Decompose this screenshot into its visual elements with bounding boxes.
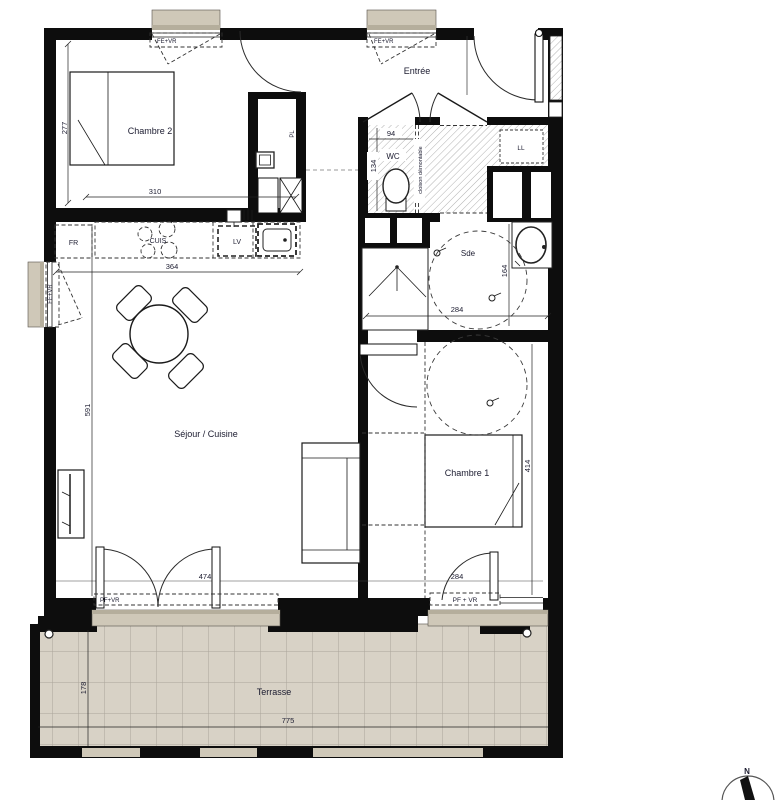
label-dishwasher: LV	[233, 239, 241, 246]
room-label-sejour: Séjour / Cuisine	[174, 429, 238, 439]
terrace-wall-segment	[268, 616, 418, 632]
wall-wc-top	[415, 117, 440, 125]
wall-sde-bottom	[358, 330, 363, 342]
room-label-wc: WC	[386, 152, 400, 161]
room-label-chambre2: Chambre 2	[128, 126, 173, 136]
entry-door-leaf	[535, 34, 543, 102]
dining-table	[111, 284, 210, 391]
closet	[256, 152, 302, 213]
shower	[362, 248, 428, 330]
dim-sde-w: 284	[451, 305, 464, 314]
label-placard: PL	[290, 130, 296, 138]
terrace-railing-panel	[313, 748, 483, 757]
door-sill-edge	[428, 610, 548, 614]
entry-door-hinge	[536, 30, 543, 37]
turning-circle-chambre1	[427, 335, 527, 435]
label-cooktop: CUIS	[150, 238, 167, 245]
wall-niche	[365, 218, 390, 243]
room-label-terrasse: Terrasse	[257, 687, 292, 697]
dim-chambre1-opening: 284	[451, 572, 464, 581]
wall-top	[436, 28, 474, 40]
floor-plan: Chambre 2 Entrée WC Sde Séjour / Cuisine…	[0, 0, 780, 800]
wall-wc-left	[358, 117, 368, 222]
closet-safe-inner	[260, 155, 271, 165]
wall-left	[44, 327, 56, 598]
toilet	[383, 169, 409, 211]
wall-bottom	[44, 598, 96, 616]
dim-wc-w: 94	[387, 129, 395, 138]
chambre1-door-leaf	[360, 344, 417, 355]
dim-chambre1-h: 414	[523, 460, 532, 473]
wall-bottom	[278, 598, 430, 616]
wall-closet-top	[248, 92, 306, 99]
floor-plan-drawing: Chambre 2 Entrée WC Sde Séjour / Cuisine…	[0, 0, 780, 800]
room-label-sde: Sde	[461, 249, 476, 258]
window-label-fevr-2: FE+VR	[374, 39, 394, 45]
bed-chambre1	[425, 435, 522, 527]
tv-unit	[58, 470, 84, 538]
compass-needle	[740, 776, 755, 800]
window-label-fevr-1: FE+VR	[157, 39, 177, 45]
wall-ll-top	[487, 117, 553, 125]
chambre2-door-swing	[240, 31, 301, 92]
window-label-fevr-3: FE+VR	[48, 284, 54, 304]
window-sill-edge	[152, 25, 220, 30]
terrace-post	[523, 629, 531, 637]
wall-right	[548, 28, 563, 758]
window-sill-edge	[367, 25, 436, 30]
terrace-post	[45, 630, 53, 638]
hatch-entry-wall	[550, 36, 562, 100]
burner	[159, 221, 175, 237]
terrace-wall-left	[30, 624, 40, 758]
label-partition: cloison démontable	[418, 146, 424, 193]
dim-terrasse-h: 178	[79, 682, 88, 695]
bed-chambre2	[70, 72, 174, 165]
faucet-box	[227, 210, 241, 222]
wall-sde-top	[430, 213, 440, 222]
chambre1-door-swing	[360, 350, 417, 407]
hatch-corridor	[419, 125, 487, 213]
closet-compartment	[258, 178, 278, 213]
burner	[141, 244, 155, 258]
label-fridge: FR	[69, 240, 78, 247]
room-label-chambre1: Chambre 1	[445, 468, 490, 478]
washbasin	[512, 222, 552, 268]
wall-pilaster	[549, 102, 562, 117]
entry-door-swing	[474, 36, 538, 100]
kitchen-sink-drain	[283, 238, 287, 242]
cupboard-niche	[493, 172, 522, 218]
label-washer: LL	[517, 145, 525, 152]
compass-north-label: N	[744, 767, 750, 776]
wall-niche	[397, 218, 422, 243]
terrace-railing-panel	[200, 748, 257, 757]
window-label-pfvr-sejour: PF+VR	[100, 598, 120, 604]
wall-top	[44, 28, 152, 40]
door-sill-edge	[92, 610, 280, 614]
terrace-tiling	[38, 624, 550, 748]
terrace	[30, 616, 563, 758]
room-label-entree: Entrée	[404, 66, 431, 76]
terrace-wall-segment	[38, 616, 97, 632]
dim-chambre2-w: 310	[149, 187, 162, 196]
wall-top	[220, 28, 367, 40]
cupboard-niche	[531, 172, 551, 218]
wc-door-leaf	[363, 93, 412, 122]
dim-wc-h: 134	[369, 160, 378, 173]
corridor-door-leaf	[438, 93, 487, 122]
sejour-door-leaf-right	[212, 547, 220, 608]
table-top	[130, 305, 188, 363]
dim-kitchen: 364	[166, 262, 179, 271]
dim-sde-h: 164	[500, 265, 509, 278]
window-label-pfvr-chambre1: PF + VR	[453, 597, 478, 604]
dim-sejour-opening: 474	[199, 572, 212, 581]
dim-sejour-h: 591	[83, 404, 92, 417]
terrace-railing-panel	[82, 748, 140, 757]
dim-terrasse-w: 775	[282, 716, 295, 725]
sofa	[302, 443, 360, 563]
pfvr-box-sejour	[94, 594, 278, 605]
north-arrow: N	[722, 767, 774, 800]
wall-left	[44, 28, 56, 262]
dim-chambre2-h: 277	[60, 122, 69, 135]
